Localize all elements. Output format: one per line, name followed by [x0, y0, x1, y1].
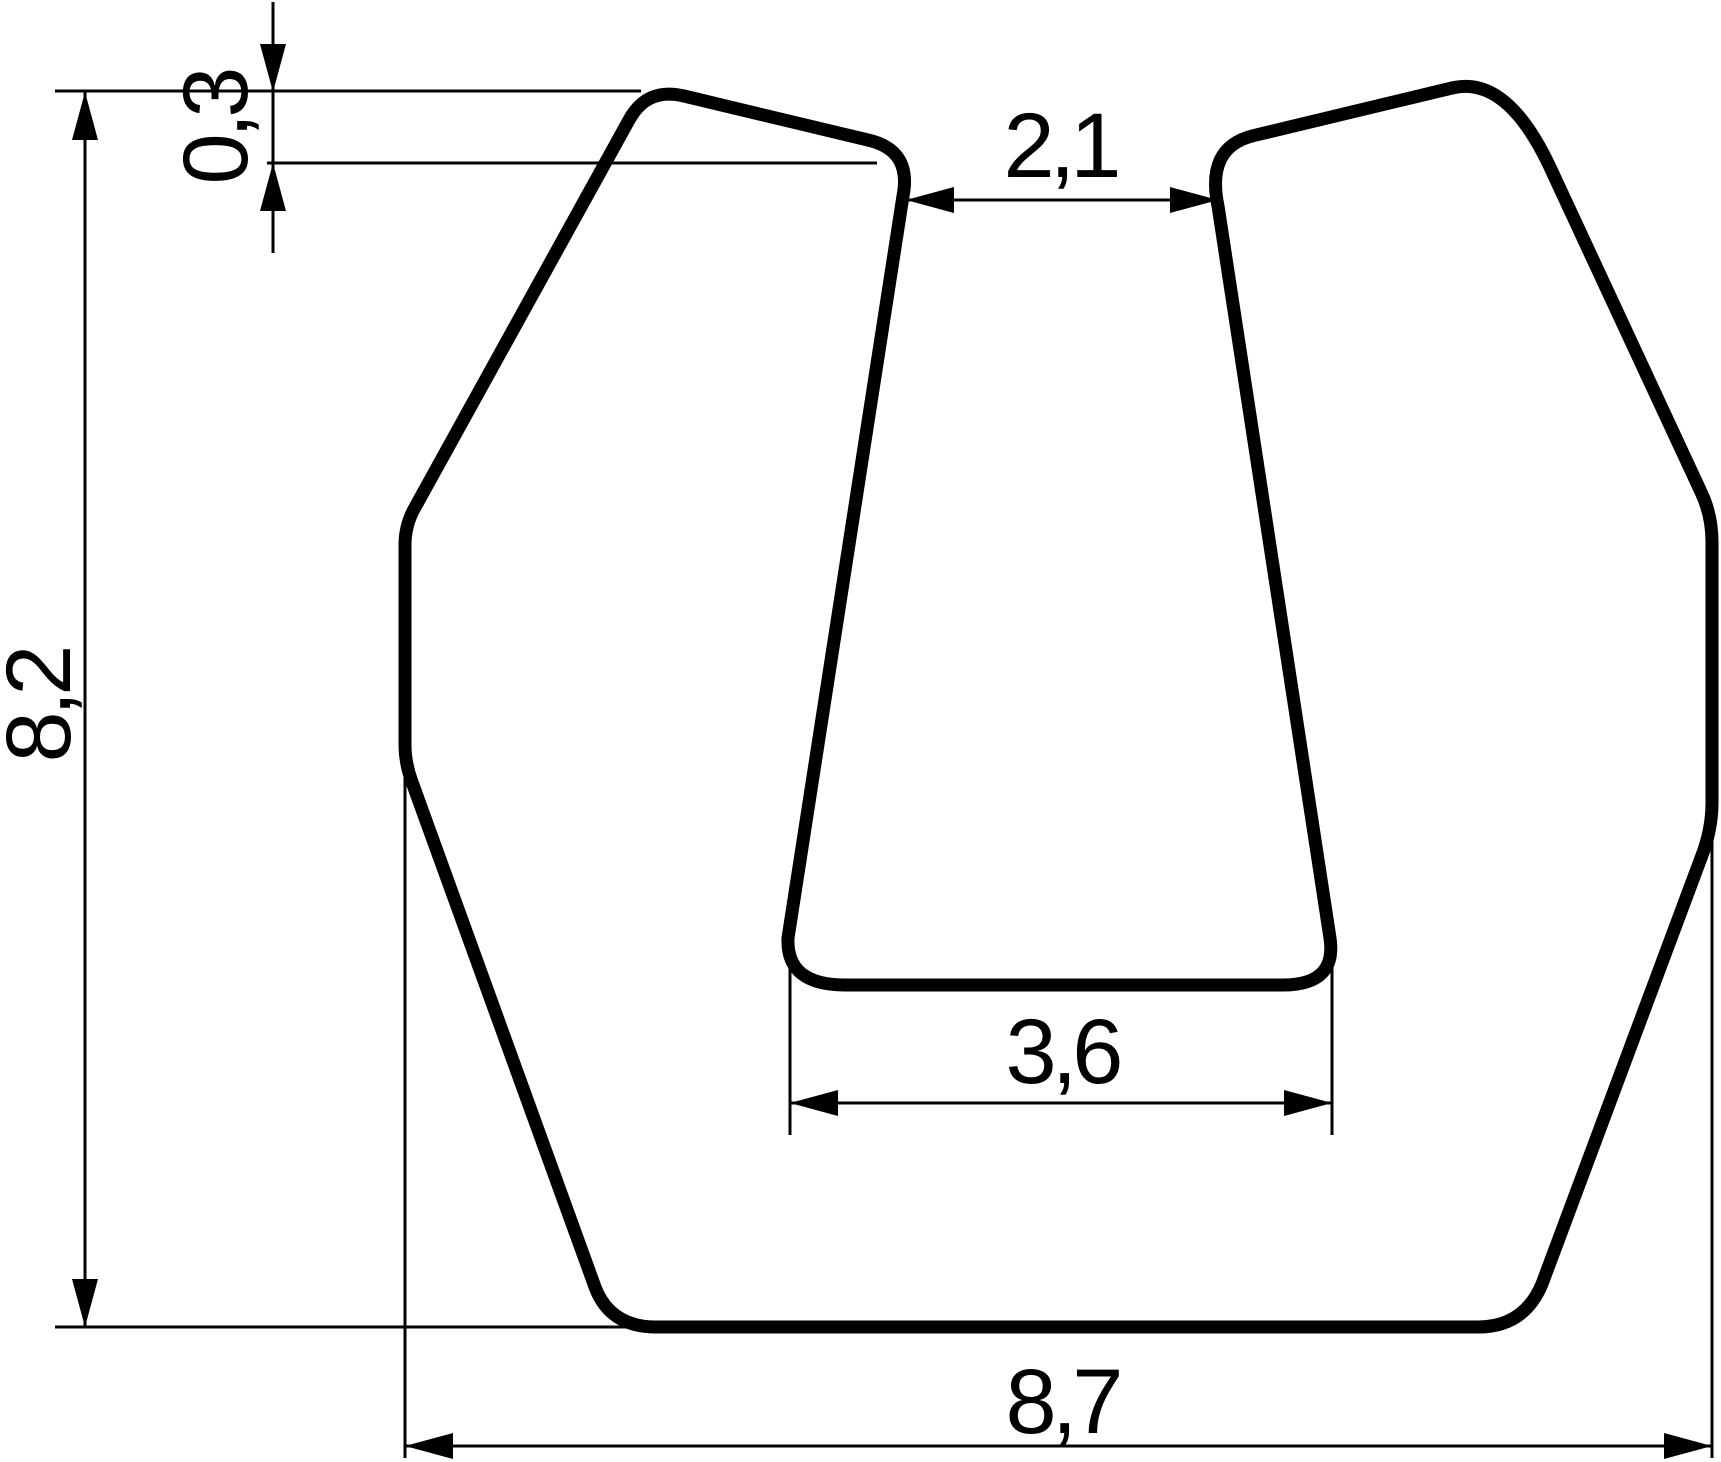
dim-slot-top-width: 2,1 — [906, 95, 1218, 213]
profile-drawing: 8,2 0,3 2,1 3,6 — [0, 0, 1721, 1462]
dim-lip-height-label: 0,3 — [165, 70, 267, 185]
dim-lip-height: 0,3 — [165, 2, 877, 253]
dim-slot-bottom-width-label: 3,6 — [1006, 1001, 1121, 1103]
dim-overall-height-arrow-bottom — [72, 1279, 98, 1327]
dim-overall-width-label: 8,7 — [1006, 1351, 1120, 1453]
profile-outline — [405, 86, 1712, 1327]
dim-overall-width-arrow-left — [405, 1433, 453, 1459]
dim-overall-width-arrow-right — [1664, 1433, 1712, 1459]
technical-drawing-canvas: 8,2 0,3 2,1 3,6 — [0, 0, 1721, 1462]
dim-slot-bottom-width: 3,6 — [790, 942, 1332, 1135]
dim-slot-top-width-arrow-left — [906, 187, 954, 213]
dim-overall-width: 8,7 — [405, 770, 1712, 1459]
dim-overall-height-label: 8,2 — [0, 649, 90, 763]
dim-slot-top-width-label: 2,1 — [1004, 95, 1118, 197]
dim-slot-bottom-width-arrow-right — [1284, 1090, 1332, 1116]
dim-overall-height-arrow-top — [72, 92, 98, 140]
dim-slot-bottom-width-arrow-left — [790, 1090, 838, 1116]
